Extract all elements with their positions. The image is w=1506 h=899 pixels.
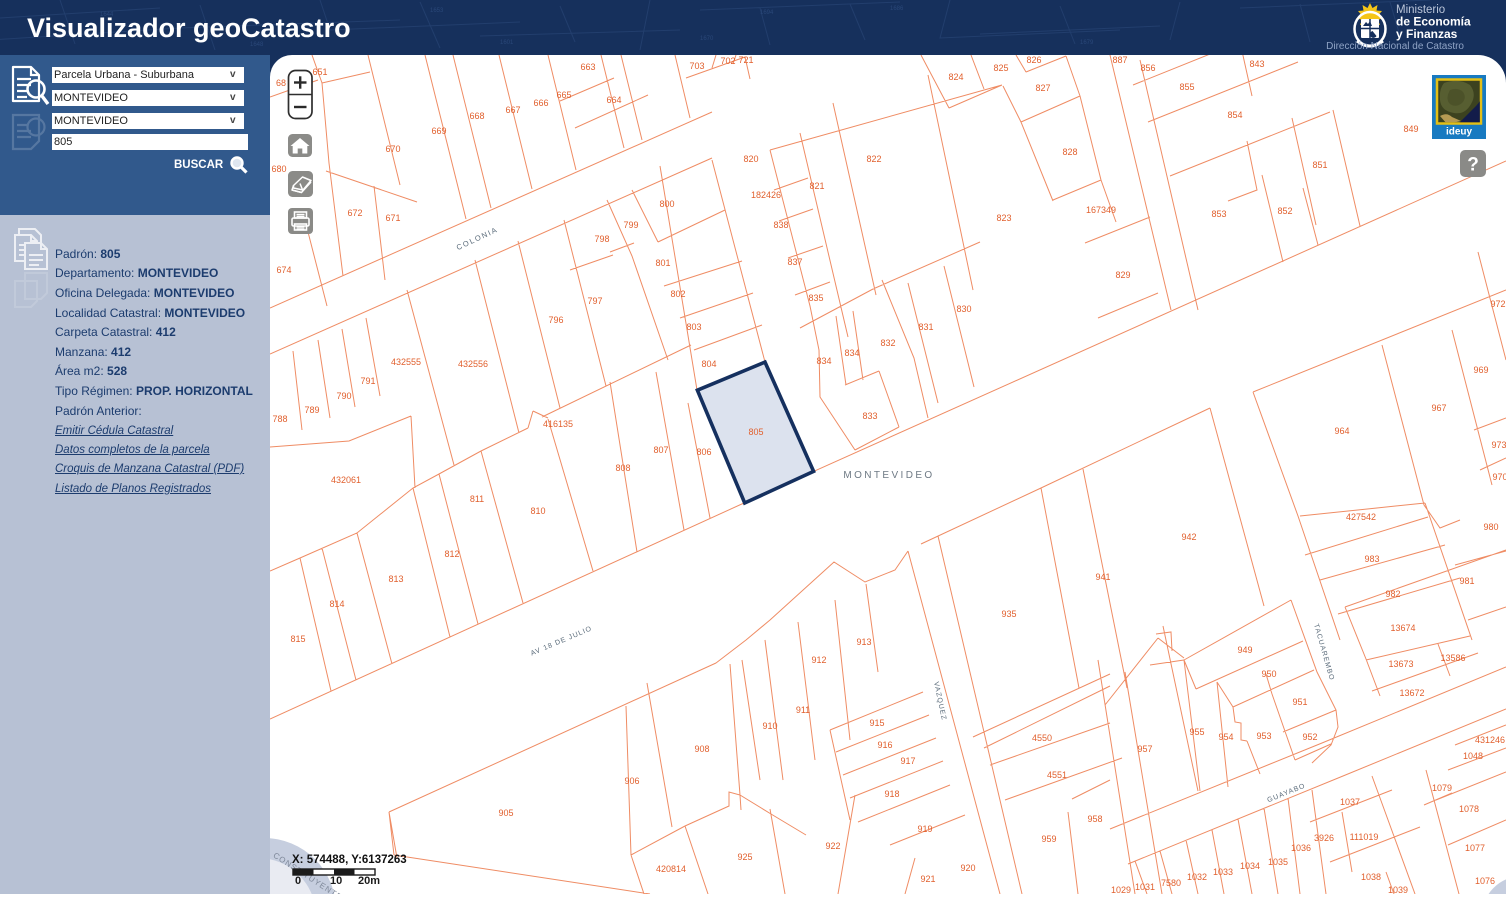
svg-text:1035: 1035: [1268, 857, 1288, 867]
svg-text:828: 828: [1062, 147, 1077, 157]
svg-text:1653: 1653: [430, 8, 444, 14]
svg-text:853: 853: [1211, 209, 1226, 219]
svg-text:1048: 1048: [1463, 751, 1483, 761]
svg-text:808: 808: [615, 463, 630, 473]
svg-text:X: 574488, Y:6137263: X: 574488, Y:6137263: [292, 854, 407, 866]
svg-text:798: 798: [594, 234, 609, 244]
svg-text:674: 674: [276, 265, 291, 275]
svg-text:801: 801: [655, 258, 670, 268]
svg-text:910: 910: [762, 721, 777, 731]
svg-text:1077: 1077: [1465, 843, 1485, 853]
svg-text:959: 959: [1041, 834, 1056, 844]
svg-text:942: 942: [1181, 532, 1196, 542]
svg-text:13674: 13674: [1390, 623, 1415, 633]
svg-text:790: 790: [336, 391, 351, 401]
svg-text:852: 852: [1277, 206, 1292, 216]
svg-text:954: 954: [1218, 732, 1233, 742]
svg-text:1694: 1694: [760, 10, 774, 16]
svg-text:1037: 1037: [1340, 797, 1360, 807]
svg-text:906: 906: [624, 776, 639, 786]
svg-text:958: 958: [1087, 814, 1102, 824]
svg-text:814: 814: [329, 599, 344, 609]
svg-text:812: 812: [444, 549, 459, 559]
svg-text:432061: 432061: [331, 475, 361, 485]
svg-text:668: 668: [469, 111, 484, 121]
svg-text:837: 837: [787, 257, 802, 267]
svg-text:953: 953: [1256, 731, 1271, 741]
svg-text:830: 830: [956, 304, 971, 314]
svg-text:702: 702: [720, 56, 735, 66]
svg-text:854: 854: [1227, 110, 1242, 120]
svg-text:669: 669: [431, 126, 446, 136]
svg-text:921: 921: [920, 874, 935, 884]
svg-text:834: 834: [844, 348, 859, 358]
svg-text:13586: 13586: [1440, 653, 1465, 663]
svg-text:1076: 1076: [1475, 876, 1495, 886]
svg-text:672: 672: [347, 208, 362, 218]
svg-text:799: 799: [623, 220, 638, 230]
svg-text:3926: 3926: [1314, 833, 1334, 843]
svg-text:815: 815: [290, 634, 305, 644]
svg-text:788: 788: [272, 414, 287, 424]
svg-text:0: 0: [295, 875, 301, 887]
svg-text:666: 666: [533, 98, 548, 108]
svg-text:432556: 432556: [458, 359, 488, 369]
svg-text:4551: 4551: [1047, 770, 1067, 780]
svg-text:922: 922: [825, 841, 840, 851]
svg-text:13672: 13672: [1399, 688, 1424, 698]
svg-text:851: 851: [1312, 160, 1327, 170]
svg-text:ideuy: ideuy: [1446, 127, 1473, 138]
svg-text:982: 982: [1385, 589, 1400, 599]
svg-text:887: 887: [1112, 55, 1127, 65]
svg-text:1679: 1679: [1080, 40, 1094, 46]
svg-text:703: 703: [689, 61, 704, 71]
svg-text:973: 973: [1491, 440, 1506, 450]
svg-text:1032: 1032: [1187, 872, 1207, 882]
svg-text:671: 671: [385, 213, 400, 223]
svg-text:823: 823: [996, 213, 1011, 223]
svg-text:1670: 1670: [700, 36, 714, 42]
svg-text:804: 804: [701, 359, 716, 369]
svg-text:20m: 20m: [358, 875, 380, 887]
svg-text:834: 834: [816, 356, 831, 366]
svg-text:825: 825: [993, 63, 1008, 73]
svg-text:905: 905: [498, 808, 513, 818]
svg-text:1686: 1686: [890, 6, 904, 12]
svg-text:918: 918: [884, 789, 899, 799]
svg-text:908: 908: [694, 744, 709, 754]
svg-text:664: 664: [606, 95, 621, 105]
svg-text:MONTEVIDEO: MONTEVIDEO: [843, 470, 934, 481]
svg-text:917: 917: [900, 756, 915, 766]
svg-text:721: 721: [738, 55, 753, 65]
svg-text:838: 838: [773, 220, 788, 230]
svg-text:791: 791: [360, 376, 375, 386]
svg-text:1036: 1036: [1291, 843, 1311, 853]
svg-text:167349: 167349: [1086, 205, 1116, 215]
svg-text:949: 949: [1237, 645, 1252, 655]
svg-text:13673: 13673: [1388, 659, 1413, 669]
svg-text:789: 789: [304, 405, 319, 415]
svg-text:980: 980: [1483, 522, 1498, 532]
svg-text:833: 833: [862, 411, 877, 421]
svg-text:420814: 420814: [656, 864, 686, 874]
svg-text:182426: 182426: [751, 190, 781, 200]
svg-text:911: 911: [796, 705, 810, 715]
svg-text:855: 855: [1179, 82, 1194, 92]
svg-text:915: 915: [869, 718, 884, 728]
svg-text:822: 822: [866, 154, 881, 164]
svg-text:432555: 432555: [391, 357, 421, 367]
svg-text:811: 811: [470, 494, 484, 504]
svg-text:?: ?: [1467, 155, 1479, 176]
svg-text:835: 835: [808, 293, 823, 303]
svg-text:1601: 1601: [500, 40, 514, 46]
svg-text:952: 952: [1302, 732, 1317, 742]
svg-text:803: 803: [686, 322, 701, 332]
svg-text:920: 920: [960, 863, 975, 873]
svg-text:797: 797: [587, 296, 602, 306]
svg-text:964: 964: [1334, 426, 1349, 436]
svg-text:969: 969: [1473, 365, 1488, 375]
svg-text:68: 68: [276, 78, 286, 88]
svg-text:806: 806: [696, 447, 711, 457]
svg-text:1039: 1039: [1388, 885, 1408, 894]
svg-text:916: 916: [877, 740, 892, 750]
svg-text:941: 941: [1095, 572, 1110, 582]
svg-text:1038: 1038: [1361, 872, 1381, 882]
svg-text:813: 813: [388, 574, 403, 584]
svg-text:1034: 1034: [1240, 861, 1260, 871]
svg-text:981: 981: [1459, 576, 1474, 586]
svg-text:826: 826: [1026, 55, 1041, 65]
svg-text:1029: 1029: [1111, 885, 1131, 894]
svg-text:824: 824: [948, 72, 963, 82]
svg-text:810: 810: [530, 506, 545, 516]
svg-text:967: 967: [1431, 403, 1446, 413]
svg-text:680: 680: [271, 164, 286, 174]
svg-text:951: 951: [1292, 697, 1307, 707]
svg-text:111019: 111019: [1350, 832, 1379, 842]
svg-text:856: 856: [1140, 63, 1155, 73]
svg-text:1031: 1031: [1135, 882, 1155, 892]
svg-text:849: 849: [1403, 124, 1418, 134]
svg-text:972: 972: [1490, 299, 1505, 309]
svg-text:827: 827: [1035, 83, 1050, 93]
svg-text:832: 832: [880, 338, 895, 348]
svg-text:651: 651: [312, 67, 327, 77]
svg-text:983: 983: [1364, 554, 1379, 564]
svg-text:1033: 1033: [1213, 867, 1233, 877]
svg-text:802: 802: [670, 289, 685, 299]
svg-text:831: 831: [918, 322, 933, 332]
svg-text:950: 950: [1261, 669, 1276, 679]
svg-text:667: 667: [505, 105, 520, 115]
svg-text:919: 919: [917, 824, 932, 834]
svg-text:427542: 427542: [1346, 512, 1376, 522]
svg-text:805: 805: [748, 427, 763, 437]
svg-text:431246: 431246: [1475, 735, 1505, 745]
svg-text:796: 796: [548, 315, 563, 325]
svg-text:670: 670: [385, 144, 400, 154]
svg-text:913: 913: [856, 637, 871, 647]
svg-text:1079: 1079: [1432, 783, 1452, 793]
svg-text:829: 829: [1115, 270, 1130, 280]
svg-text:665: 665: [556, 90, 571, 100]
svg-text:10: 10: [330, 875, 342, 887]
svg-text:955: 955: [1189, 727, 1204, 737]
svg-text:843: 843: [1249, 59, 1264, 69]
svg-text:820: 820: [743, 154, 758, 164]
svg-text:925: 925: [737, 852, 752, 862]
svg-text:800: 800: [659, 199, 674, 209]
svg-text:416135: 416135: [543, 419, 573, 429]
svg-text:970: 970: [1492, 472, 1506, 482]
svg-text:y Finanzas: y Finanzas: [1396, 27, 1458, 41]
svg-text:7580: 7580: [1161, 878, 1181, 888]
svg-text:935: 935: [1001, 609, 1016, 619]
svg-text:957: 957: [1137, 744, 1152, 754]
svg-text:1078: 1078: [1459, 804, 1479, 814]
svg-text:821: 821: [809, 181, 824, 191]
svg-text:807: 807: [653, 445, 668, 455]
svg-text:912: 912: [811, 655, 826, 665]
svg-text:663: 663: [580, 62, 595, 72]
svg-text:4550: 4550: [1032, 733, 1052, 743]
